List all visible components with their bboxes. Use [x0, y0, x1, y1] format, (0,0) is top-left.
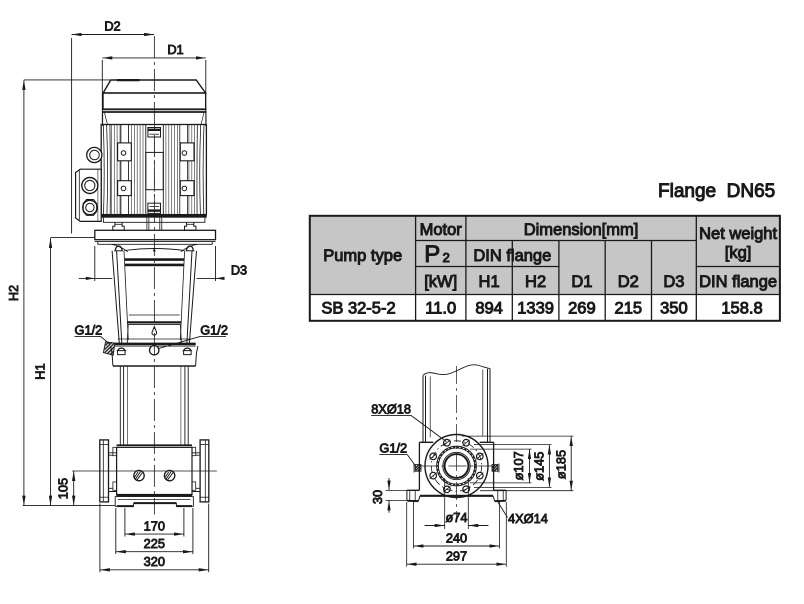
svg-text:H1: H1 — [33, 363, 48, 379]
svg-text:269: 269 — [568, 300, 596, 318]
svg-text:H1: H1 — [479, 273, 500, 291]
svg-text:11.0: 11.0 — [425, 300, 456, 318]
svg-text:ø145: ø145 — [531, 452, 546, 481]
svg-text:G1/2: G1/2 — [75, 322, 103, 337]
svg-text:894: 894 — [475, 300, 503, 318]
svg-text:SB 32-5-2: SB 32-5-2 — [321, 300, 395, 318]
svg-text:297: 297 — [446, 549, 467, 564]
svg-text:170: 170 — [144, 519, 165, 534]
svg-text:H2: H2 — [6, 285, 21, 301]
svg-text:320: 320 — [144, 554, 165, 569]
svg-text:2: 2 — [442, 250, 449, 265]
svg-text:158.8: 158.8 — [721, 300, 762, 318]
svg-text:Flange DN65: Flange DN65 — [658, 181, 775, 202]
svg-text:30: 30 — [370, 490, 385, 504]
svg-text:D1: D1 — [167, 42, 183, 57]
svg-text:P: P — [424, 241, 440, 268]
svg-text:215: 215 — [615, 300, 643, 318]
svg-text:350: 350 — [660, 300, 688, 318]
svg-text:DIN flange: DIN flange — [473, 247, 551, 265]
svg-text:Net weight: Net weight — [699, 225, 777, 243]
svg-text:4XØ14: 4XØ14 — [508, 511, 548, 526]
svg-text:DIN flange: DIN flange — [699, 273, 777, 291]
svg-text:Dimension[mm]: Dimension[mm] — [524, 221, 639, 239]
svg-text:D3: D3 — [663, 273, 684, 291]
svg-text:1339: 1339 — [517, 300, 554, 318]
svg-text:240: 240 — [446, 530, 467, 545]
svg-text:[kg]: [kg] — [725, 244, 752, 262]
svg-text:[kW]: [kW] — [424, 273, 457, 291]
svg-text:H2: H2 — [525, 273, 546, 291]
svg-text:ø107: ø107 — [511, 451, 526, 480]
svg-text:G1/2: G1/2 — [200, 322, 228, 337]
svg-text:ø185: ø185 — [553, 450, 568, 479]
svg-text:8XØ18: 8XØ18 — [371, 401, 411, 416]
svg-text:105: 105 — [56, 478, 71, 499]
svg-text:D2: D2 — [618, 273, 639, 291]
svg-text:225: 225 — [144, 536, 165, 551]
svg-text:G1/2: G1/2 — [379, 441, 407, 456]
svg-text:D1: D1 — [571, 273, 592, 291]
svg-text:Pump type: Pump type — [323, 247, 402, 265]
svg-text:D2: D2 — [104, 19, 120, 34]
svg-text:D3: D3 — [231, 263, 247, 278]
svg-text:Motor: Motor — [420, 221, 463, 239]
svg-text:ø74: ø74 — [445, 510, 467, 525]
